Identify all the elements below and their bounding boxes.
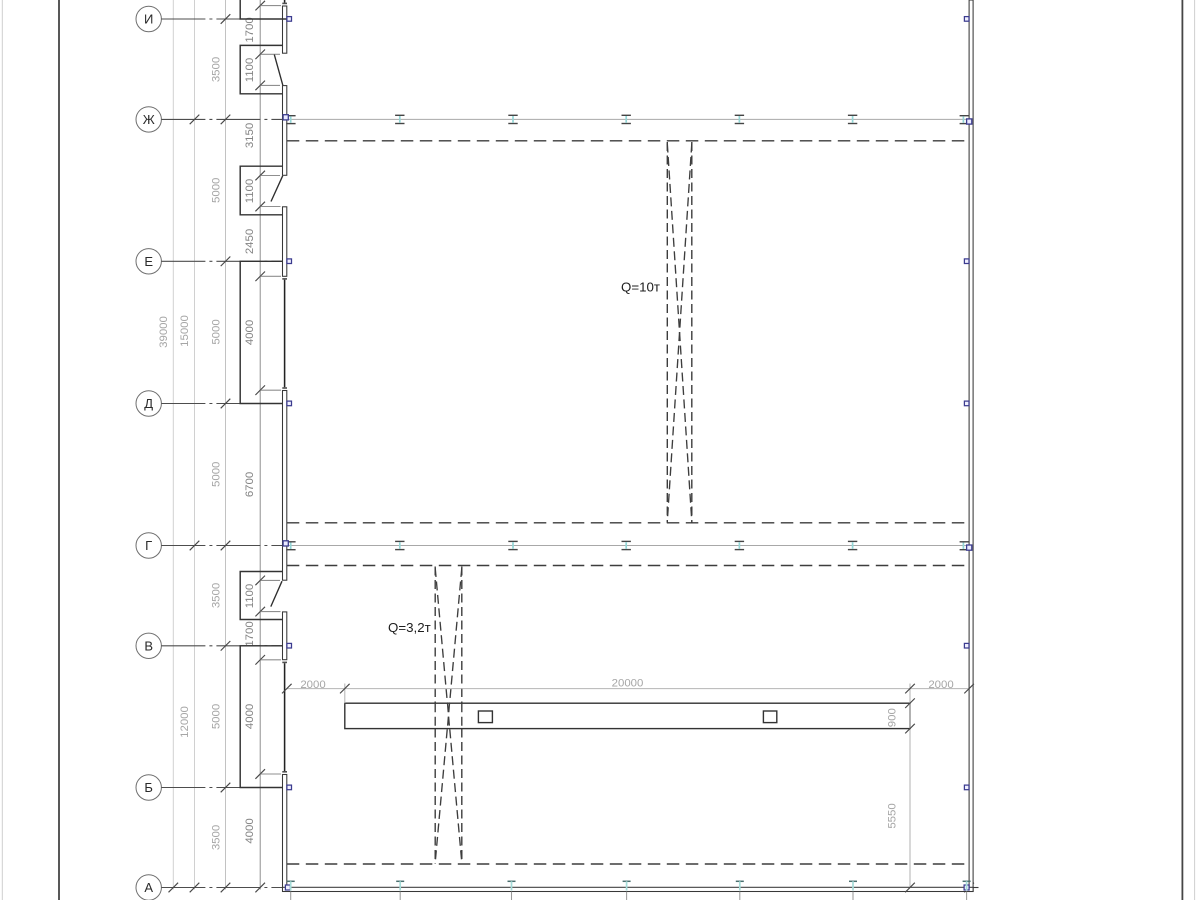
svg-text:Ж: Ж [143, 112, 155, 127]
svg-text:15000: 15000 [179, 315, 191, 347]
svg-text:900: 900 [886, 708, 898, 727]
svg-text:3500: 3500 [210, 583, 222, 608]
svg-text:Q=3,2т: Q=3,2т [388, 620, 431, 635]
svg-text:4000: 4000 [244, 320, 256, 345]
svg-text:Б: Б [144, 780, 153, 795]
svg-text:1100: 1100 [244, 584, 256, 609]
svg-text:2000: 2000 [300, 679, 325, 691]
svg-text:6700: 6700 [244, 472, 256, 497]
svg-text:Г: Г [145, 538, 152, 553]
svg-text:3500: 3500 [210, 825, 222, 850]
svg-text:39000: 39000 [158, 316, 170, 348]
svg-text:2450: 2450 [244, 229, 256, 254]
svg-text:1700: 1700 [244, 621, 256, 646]
svg-text:3150: 3150 [244, 123, 256, 148]
svg-text:5000: 5000 [210, 178, 222, 203]
svg-text:3500: 3500 [210, 57, 222, 82]
svg-text:12000: 12000 [179, 706, 191, 738]
svg-text:И: И [144, 12, 153, 27]
svg-text:4000: 4000 [244, 704, 256, 729]
svg-text:5000: 5000 [210, 462, 222, 487]
svg-text:2000: 2000 [928, 679, 953, 691]
svg-text:20000: 20000 [612, 678, 644, 690]
svg-text:4000: 4000 [244, 818, 256, 843]
svg-text:В: В [144, 639, 153, 654]
svg-text:Q=10т: Q=10т [621, 280, 660, 295]
svg-text:А: А [144, 880, 153, 895]
svg-text:5000: 5000 [210, 319, 222, 344]
svg-text:1700: 1700 [244, 17, 256, 42]
svg-text:5000: 5000 [210, 704, 222, 729]
svg-text:5550: 5550 [886, 803, 898, 828]
svg-text:1100: 1100 [244, 179, 256, 204]
svg-text:Д: Д [144, 396, 153, 411]
svg-text:Е: Е [144, 254, 153, 269]
svg-text:1100: 1100 [244, 58, 256, 83]
